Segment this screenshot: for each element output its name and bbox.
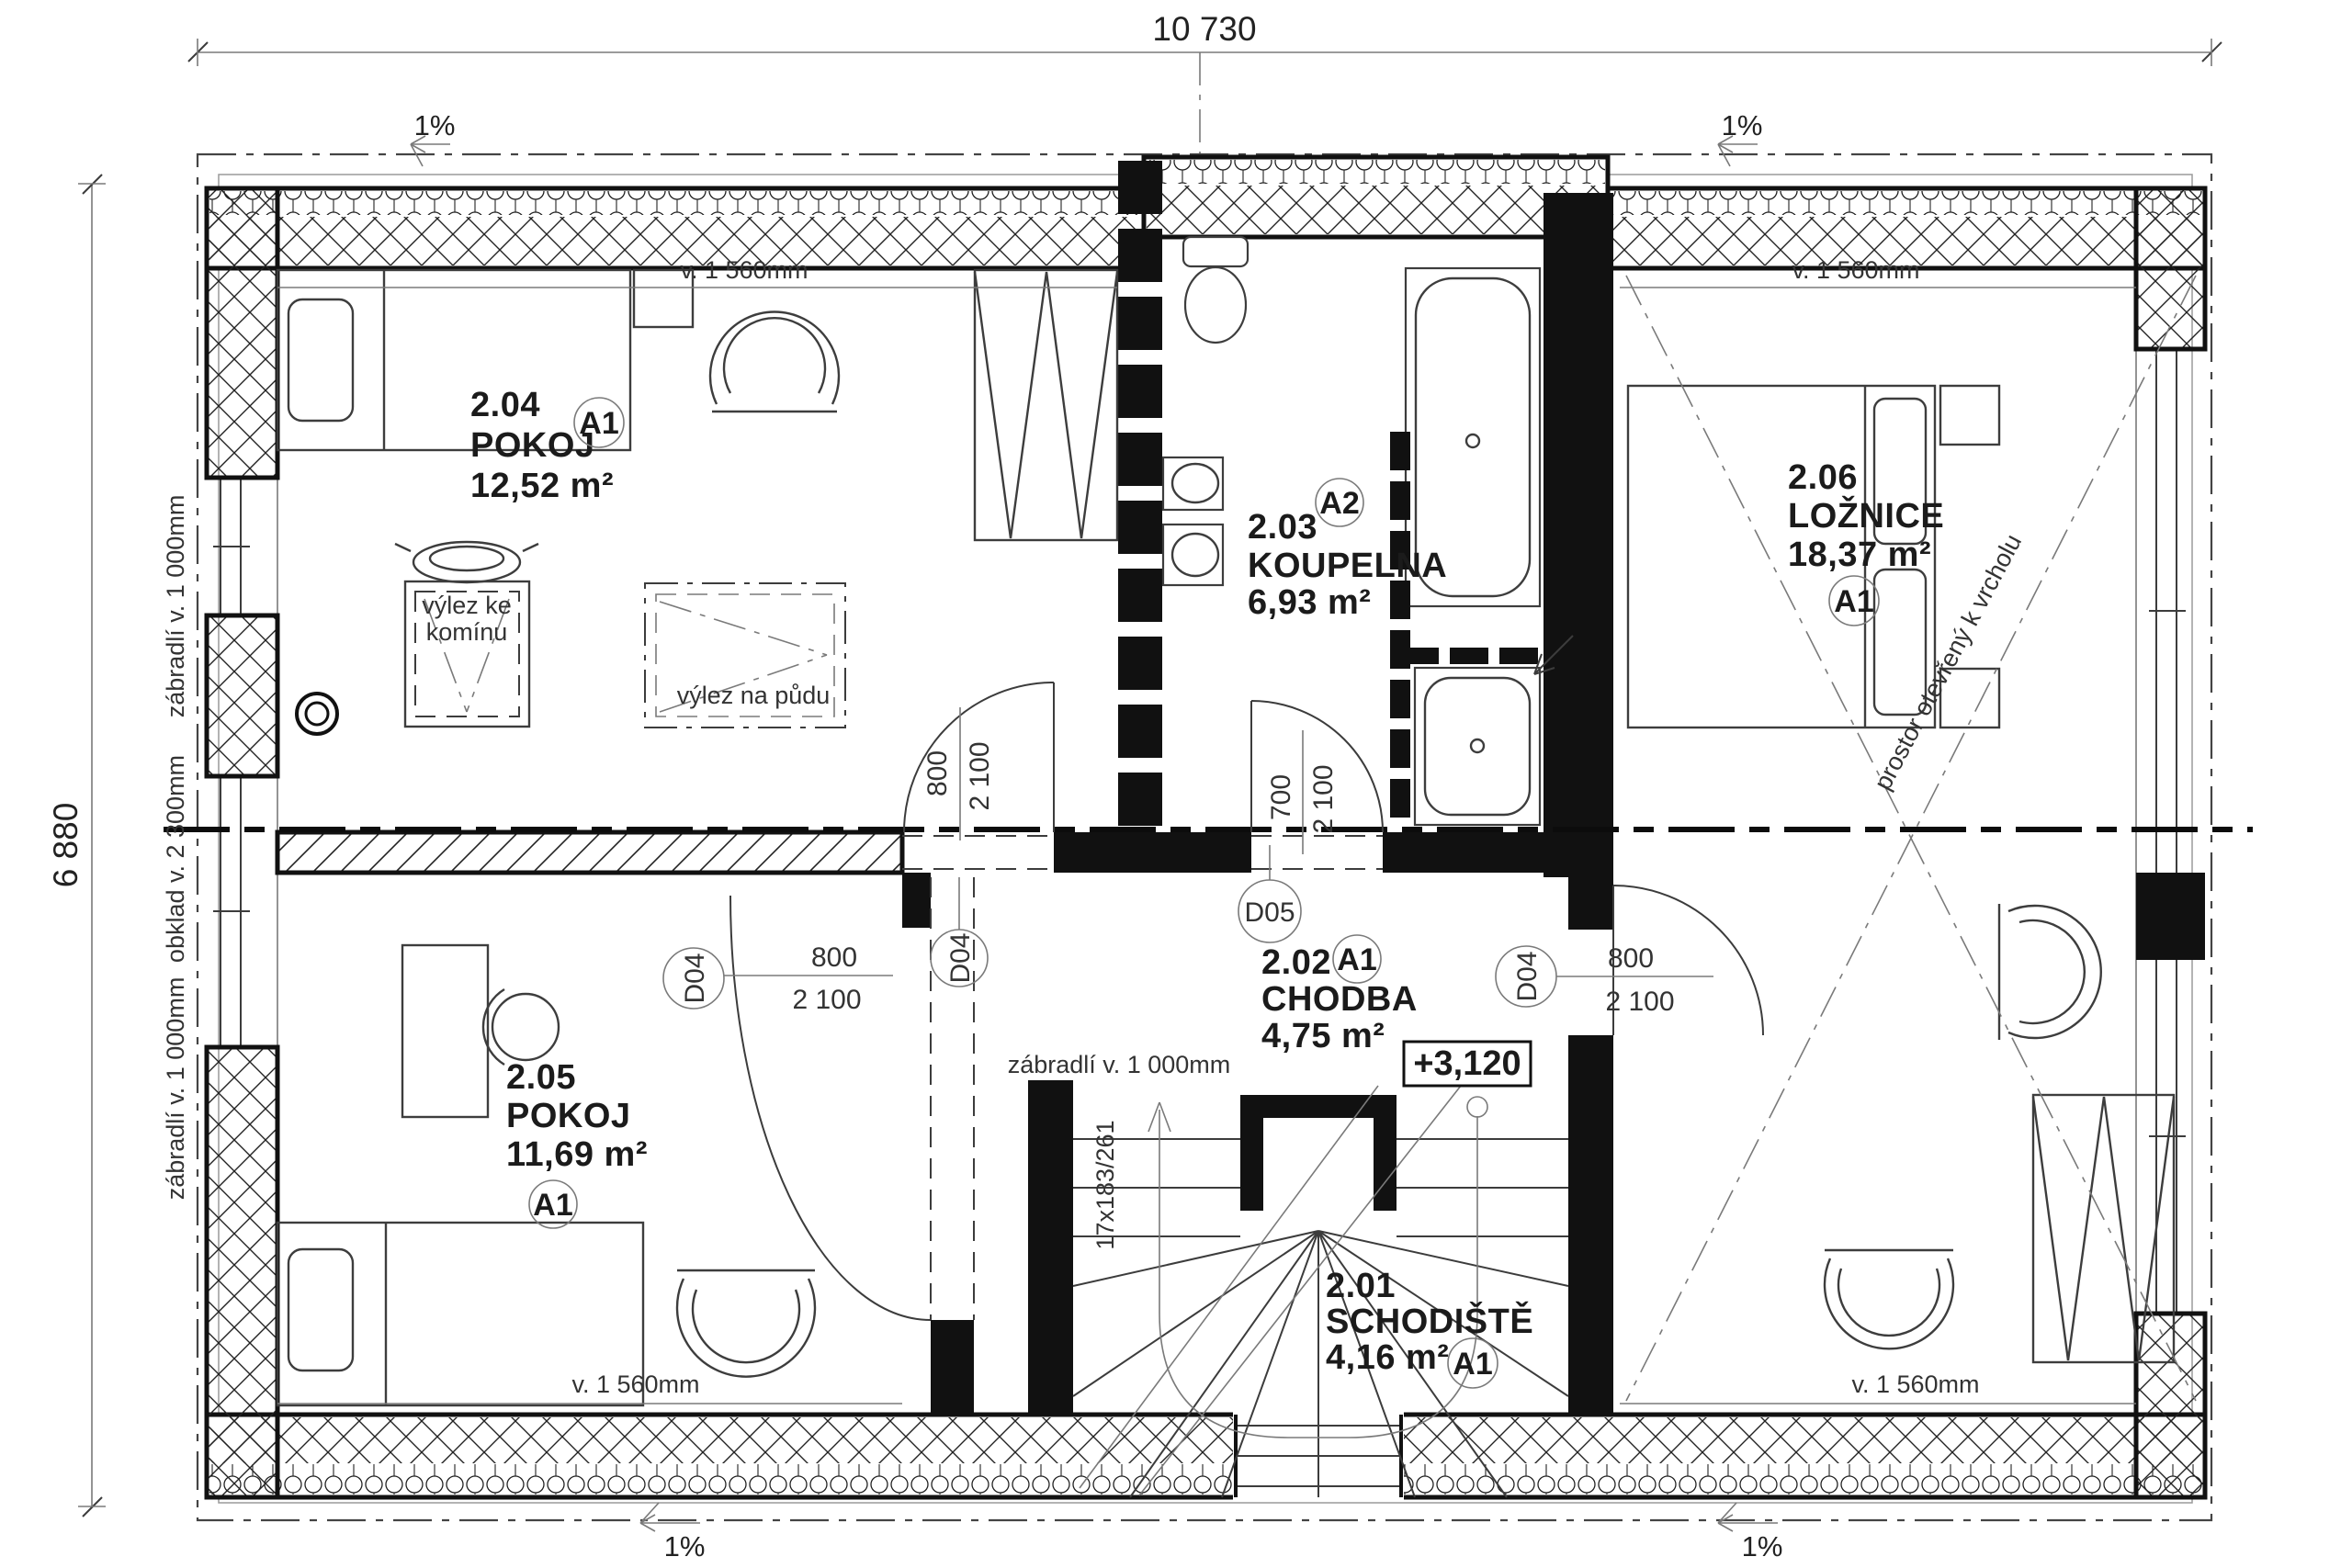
- svg-text:4,16 m²: 4,16 m²: [1326, 1338, 1449, 1377]
- finish-tag-206: A1: [1834, 584, 1873, 619]
- railing-left-bottom: zábradlí v. 1 000mm: [162, 977, 189, 1201]
- svg-text:SCHODIŠTĚ: SCHODIŠTĚ: [1326, 1300, 1533, 1341]
- svg-text:2.03: 2.03: [1248, 508, 1317, 547]
- open-space-cross: [1626, 276, 2196, 1401]
- door-height-bath: 2 100: [1308, 764, 1339, 833]
- room-label-202: 2.02 CHODBA 4,75 m² A1: [1261, 935, 1418, 1055]
- svg-text:2.01: 2.01: [1326, 1267, 1396, 1305]
- door-width-204: 800: [922, 750, 953, 796]
- door-width-205: 800: [811, 942, 857, 973]
- svg-text:D04: D04: [1512, 951, 1543, 1001]
- knee-height-bottom-left: v. 1 560mm: [571, 1371, 699, 1398]
- slope-label-top-right: 1%: [1722, 109, 1763, 141]
- slope-label-top-left: 1%: [414, 109, 456, 141]
- slope-arrow-bottom-right: 1%: [1718, 1503, 1782, 1562]
- railing-stair: zábradlí v. 1 000mm: [1008, 1051, 1231, 1078]
- sink-1: [1163, 457, 1223, 510]
- wardrobe-204: [975, 270, 1117, 540]
- svg-text:18,37 m²: 18,37 m²: [1788, 536, 1931, 574]
- door-tag-d04-right: D04 800 2 100: [1496, 943, 1713, 1017]
- svg-text:KOUPELNA: KOUPELNA: [1248, 547, 1447, 585]
- door-height-204: 2 100: [965, 741, 995, 810]
- stair-left-wall: [1028, 1080, 1073, 1415]
- room-label-205: 2.05 POKOJ 11,69 m² A1: [506, 1058, 648, 1228]
- overall-width-dimension: 10 730: [1152, 10, 1256, 48]
- armchair-206: [1999, 904, 2101, 1040]
- svg-text:2.04: 2.04: [470, 386, 540, 424]
- svg-text:D04: D04: [680, 953, 710, 1003]
- svg-text:6,93 m²: 6,93 m²: [1248, 583, 1371, 622]
- chimney-access-line1: výlez ke: [422, 592, 512, 619]
- svg-text:LOŽNICE: LOŽNICE: [1788, 495, 1944, 536]
- slope-label-bottom-left: 1%: [664, 1530, 706, 1562]
- svg-text:4,75 m²: 4,75 m²: [1261, 1017, 1385, 1055]
- toilet: [1183, 237, 1248, 343]
- stair-spec-label: 17x183/261: [1091, 1120, 1119, 1249]
- finish-tag-201: A1: [1453, 1347, 1492, 1382]
- door-tag-d04-left: D04 800 2 100: [663, 942, 893, 1015]
- stair-right-wall: [1568, 1035, 1613, 1415]
- finish-tag-203: A2: [1319, 486, 1359, 521]
- attic-hatch-label: výlez na půdu: [677, 682, 831, 709]
- armchair-204: [710, 311, 839, 412]
- cladding-left: obklad v. 2 300mm: [162, 755, 189, 963]
- door-height-205: 2 100: [792, 985, 861, 1015]
- knee-height-bottom-right: v. 1 560mm: [1851, 1371, 1979, 1398]
- knee-height-top-left: v. 1 560mm: [680, 256, 808, 284]
- svg-text:POKOJ: POKOJ: [506, 1097, 631, 1135]
- finish-tag-204: A1: [579, 406, 618, 441]
- svg-text:2.06: 2.06: [1788, 458, 1858, 497]
- svg-text:2.02: 2.02: [1261, 943, 1331, 982]
- door-width-bath: 700: [1266, 774, 1296, 820]
- slope-arrow-top-left: 1%: [411, 109, 455, 166]
- finish-tag-205: A1: [533, 1188, 572, 1223]
- hall-right-stub: [1568, 877, 1613, 930]
- svg-text:12,52 m²: 12,52 m²: [470, 467, 614, 505]
- level-marker: +3,120: [1404, 1042, 1531, 1086]
- svg-text:2.05: 2.05: [506, 1058, 576, 1097]
- slope-label-bottom-right: 1%: [1742, 1530, 1783, 1562]
- door-height-206: 2 100: [1605, 987, 1674, 1017]
- wall-stub: [902, 873, 931, 928]
- railing-left-top: zábradlí v. 1 000mm: [162, 495, 189, 718]
- svg-text:11,69 m²: 11,69 m²: [506, 1135, 648, 1174]
- finish-tag-202: A1: [1337, 942, 1376, 977]
- level-value: +3,120: [1413, 1044, 1521, 1083]
- svg-text:D05: D05: [1244, 897, 1295, 928]
- room-label-204: 2.04 POKOJ 12,52 m² A1: [470, 386, 624, 505]
- knee-height-top-right: v. 1 560mm: [1792, 256, 1919, 284]
- floor-plan-page: 10 730 6 880 1% 1% 1%: [0, 0, 2352, 1568]
- armchair-205: [677, 1270, 815, 1377]
- bathroom-fixtures: [1163, 237, 1573, 827]
- sink-2: [1163, 525, 1223, 585]
- overall-height-dimension: 6 880: [47, 803, 85, 888]
- floor-plan-drawing: 10 730 6 880 1% 1% 1%: [0, 0, 2352, 1568]
- door-tag-d05: D05 700 2 100: [1238, 764, 1339, 942]
- chair-206: [1825, 1250, 1953, 1348]
- stair-newel-wall: [1240, 1095, 1396, 1211]
- vent-pipe: [297, 694, 337, 734]
- bathroom-bedroom-wall: [1543, 193, 1613, 877]
- bed-204: [277, 270, 630, 450]
- left-wall: [207, 188, 277, 1497]
- slope-arrow-bottom-left: 1%: [640, 1503, 705, 1562]
- bottom-wall: [207, 1411, 2205, 1501]
- room205-corner-wall: [931, 1320, 974, 1415]
- door-width-206: 800: [1608, 943, 1654, 974]
- svg-text:D04: D04: [945, 932, 976, 983]
- svg-text:CHODBA: CHODBA: [1261, 980, 1418, 1019]
- hall-top-wall: [277, 832, 1568, 873]
- door-tag-d04-center: D04 800 2 100: [922, 741, 995, 987]
- chimney-access-line2: komínu: [426, 618, 508, 646]
- room-label-201: 2.01 SCHODIŠTĚ 4,16 m² A1: [1326, 1267, 1533, 1388]
- slope-arrow-top-right: 1%: [1718, 109, 1762, 166]
